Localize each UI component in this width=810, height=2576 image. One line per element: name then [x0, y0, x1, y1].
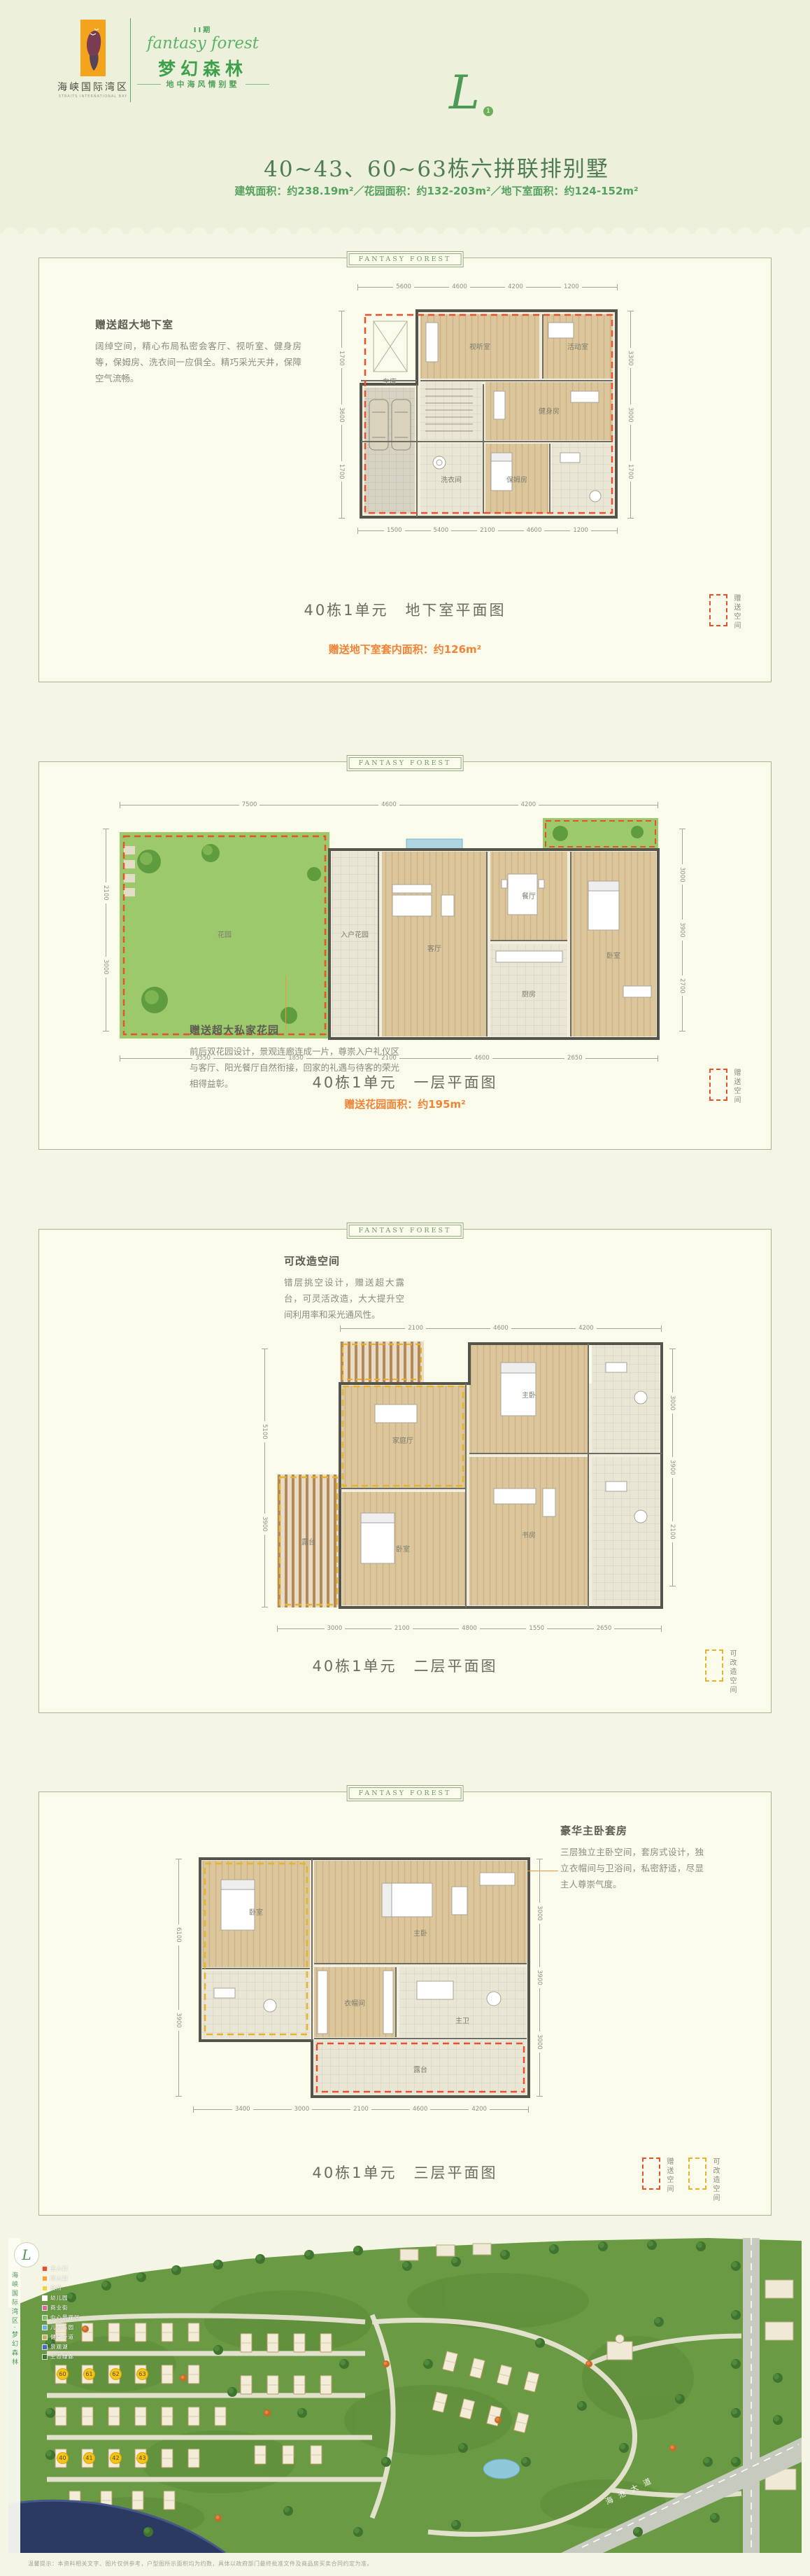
svg-text:卧室: 卧室 [249, 1908, 263, 1917]
ribbon-label: FANTASY FOREST [349, 1225, 462, 1237]
dim-value: 2100 [477, 527, 498, 535]
dim-value: 2100 [405, 1325, 426, 1332]
svg-text:卧室: 卧室 [396, 1544, 410, 1554]
dim-value: 1200 [570, 527, 591, 535]
side-strip-text: 海峡国际湾区·梦幻森林 [10, 2272, 19, 2553]
dim-value: 3000 [102, 957, 109, 978]
dim-value: 1500 [384, 527, 405, 535]
dim-value: 4800 [459, 1625, 480, 1633]
brochure-page: 海峡国际湾区 STRAITS INTERNATIONAL BAY II期 fan… [0, 0, 810, 2576]
dim-value: 4600 [378, 801, 399, 809]
svg-text:入户花园: 入户花园 [341, 930, 369, 939]
page-subtitle: 建筑面积：约238.19m²／花园面积：约132-203m²／地下室面积：约12… [63, 183, 810, 198]
dims-bottom: 34003000210046004200 [193, 2106, 529, 2113]
dim-value: 3900 [261, 1514, 268, 1535]
dims-top: 210046004200 [340, 1325, 662, 1332]
panel-ribbon: FANTASY FOREST [347, 1785, 464, 1801]
dim-value: 1550 [526, 1625, 547, 1633]
legend-remodel: 可改造空间 [688, 2158, 720, 2203]
dims-top: 5600460042001200 [357, 283, 618, 291]
building-badge: 42 [110, 2452, 122, 2464]
dim-value: 3900 [678, 920, 685, 941]
script-title: fantasy forest [140, 34, 266, 52]
svg-text:衣帽间: 衣帽间 [344, 1999, 365, 2008]
dim-value: 1200 [561, 283, 582, 291]
building-badge: 63 [136, 2368, 148, 2380]
dim-value: 4600 [410, 2106, 431, 2113]
dim-value: 2100 [350, 2106, 371, 2113]
remodel-dash-swatch [705, 1649, 723, 1682]
dim-value: 2700 [678, 976, 685, 997]
project-name: 梦幻森林 [147, 55, 259, 80]
dim-value: 3300 [627, 348, 634, 369]
plan-caption: 40栋1单元 地下室平面图 [39, 599, 771, 620]
dims-left: 51003900 [260, 1349, 269, 1607]
basement-floorplan: 车库 视听室 活动室 健身房 保姆房 洗衣间 [242, 279, 662, 608]
legend-label: 可改造空间 [727, 1649, 737, 1695]
svg-text:书房: 书房 [522, 1530, 536, 1540]
siteplan-side-strip: 海峡国际湾区·梦幻森林 [8, 2238, 20, 2553]
dim-value: 1700 [338, 348, 345, 369]
dim-value: 4600 [524, 527, 545, 535]
dim-value: 3400 [232, 2106, 253, 2113]
dim-value: 6100 [175, 1924, 182, 1945]
dims-bottom: 15005400210046001200 [357, 527, 618, 535]
legend-label: 赠送空间 [664, 2158, 674, 2194]
building-badge: 62 [110, 2368, 122, 2380]
svg-text:家庭厅: 家庭厅 [392, 1436, 413, 1445]
note-body: 三层独立主卧空间，套房式设计，独立衣帽间与卫浴间，私密舒适，尽显主人尊崇气度。 [560, 1844, 704, 1892]
note-title: 豪华主卧套房 [560, 1823, 704, 1838]
dim-value: 3000 [536, 2032, 543, 2053]
svg-text:花园: 花园 [218, 930, 232, 939]
dim-value: 4200 [518, 801, 539, 809]
panel-basement: FANTASY FOREST 赠送超大地下室 阔绰空间，精心布局私密会客厅、视听… [38, 258, 772, 682]
page-title: 40~43、60~63栋六拼联排别墅 [63, 151, 810, 183]
dim-value: 3000 [678, 864, 685, 885]
panel-ribbon: FANTASY FOREST [347, 251, 464, 267]
dim-value: 5100 [261, 1421, 268, 1442]
dims-right: 300039002700 [677, 829, 687, 1032]
dim-value: 1700 [338, 461, 345, 482]
svg-text:厨房: 厨房 [522, 990, 536, 999]
legend-gift: 赠送空间 [709, 1069, 741, 1105]
siteplan-legend-item: 中心景观区 [42, 2314, 80, 2321]
tagline: 地中海风情别墅 [125, 78, 281, 90]
rear-garden [543, 818, 658, 850]
legend-remodel: 可改造空间 [705, 1649, 737, 1695]
note-leader-line [527, 1871, 558, 1871]
panel-ribbon: FANTASY FOREST [347, 1223, 464, 1239]
remodel-dash-swatch [688, 2158, 706, 2190]
siteplan-legend-item: 会所 [42, 2284, 80, 2292]
building-badge: 40 [57, 2452, 69, 2464]
dims-right: 330030001700 [625, 311, 635, 519]
siteplan-legend-item: 儿童乐园 [42, 2323, 80, 2331]
tagline-text: 地中海风情别墅 [166, 78, 240, 90]
dim-value: 1700 [627, 461, 634, 482]
dims-left: 170036001700 [336, 311, 346, 519]
siteplan-legend-item: 幼儿园 [42, 2294, 80, 2302]
siteplan-legend-item: 次入口 [42, 2274, 80, 2282]
scallop-divider [0, 234, 810, 251]
dims-right: 300039002100 [667, 1349, 677, 1586]
legend-label: 可改造空间 [710, 2158, 720, 2203]
svg-text:健身房: 健身房 [539, 407, 560, 416]
panel-first-floor: FANTASY FOREST [38, 761, 772, 1150]
dim-value: 4200 [469, 2106, 490, 2113]
dim-value: 2650 [564, 1055, 585, 1062]
dim-value: 7500 [239, 801, 260, 809]
plan-caption: 40栋1单元 二层平面图 [39, 1655, 771, 1676]
panel-third-floor: FANTASY FOREST [38, 1792, 772, 2216]
ribbon-label: FANTASY FOREST [349, 1787, 462, 1799]
gift-dash-swatch [709, 594, 727, 626]
svg-text:露台: 露台 [301, 1537, 315, 1547]
dim-value: 3000 [536, 1903, 543, 1924]
dim-value: 3000 [669, 1393, 676, 1414]
svg-text:活动室: 活动室 [567, 342, 588, 351]
building-badge: 61 [83, 2368, 95, 2380]
siteplan-legend-item: 主入口 [42, 2265, 80, 2272]
svg-text:卧室: 卧室 [606, 951, 620, 960]
phase-label: II期 [157, 24, 248, 34]
legend-gift: 赠送空间 [709, 594, 741, 631]
dims-left: 21003000 [101, 829, 111, 1032]
dim-value: 3900 [175, 2010, 182, 2031]
note-title: 赠送超大私家花园 [190, 1022, 399, 1037]
panel-second-floor: FANTASY FOREST 可改造空间 错层挑空设计，赠送超大露台，可灵活改造… [38, 1229, 772, 1713]
dim-value: 5400 [431, 527, 452, 535]
dim-value: 3600 [338, 404, 345, 425]
svg-text:视听室: 视听室 [469, 342, 490, 351]
note-title: 可改造空间 [284, 1253, 404, 1268]
ribbon-label: FANTASY FOREST [349, 253, 462, 265]
building-badge: 43 [136, 2452, 148, 2464]
svg-text:露台: 露台 [413, 2065, 427, 2074]
siteplan-legend-item: 健身步道 [42, 2333, 80, 2341]
header-divider [130, 18, 131, 102]
plan-caption: 40栋1单元 一层平面图 [39, 1071, 771, 1092]
siteplan-legend-item: 商业街 [42, 2304, 80, 2311]
disclaimer-text: 温馨提示：本资料相关文字、图片仅供参考，户型图所示面积均为约数，具体以政府部门最… [28, 2560, 769, 2568]
building-badge: 60 [57, 2368, 69, 2380]
dim-value: 2100 [102, 882, 109, 903]
siteplan-illustration [8, 2238, 802, 2553]
legend-label: 赠送空间 [731, 1069, 741, 1105]
siteplan-legend-item: 景观湖 [42, 2343, 80, 2351]
svg-text:主卧: 主卧 [413, 1929, 427, 1938]
dim-value: 4600 [490, 1325, 511, 1332]
pond [483, 2459, 520, 2479]
dim-value: 3900 [669, 1457, 676, 1478]
svg-text:主卧: 主卧 [522, 1391, 536, 1400]
third-floor-note: 豪华主卧套房 三层独立主卧空间，套房式设计，独立衣帽间与卫浴间，私密舒适，尽显主… [560, 1823, 704, 1892]
dim-value: 2650 [594, 1625, 615, 1633]
brand-logo-icon [80, 20, 106, 76]
dims-left: 61003900 [173, 1859, 183, 2097]
dims-top: 750046004200 [120, 801, 658, 809]
svg-text:餐厅: 餐厅 [522, 892, 536, 901]
legend-pair: 赠送空间 可改造空间 [642, 2158, 720, 2203]
dim-value: 4600 [449, 283, 470, 291]
gift-area-highlight: 赠送花园面积：约195m² [39, 1097, 771, 1111]
dim-value: 3000 [325, 1625, 346, 1633]
svg-text:主卫: 主卫 [455, 2017, 469, 2025]
unit-letter-mark: L [449, 70, 480, 116]
brand-name-en: STRAITS INTERNATIONAL BAY [44, 94, 142, 99]
svg-text:洗衣间: 洗衣间 [441, 475, 462, 484]
dims-bottom: 30002100480015502650 [277, 1625, 662, 1633]
dim-value: 3900 [536, 1967, 543, 1988]
unit-letter-badge: L [14, 2242, 39, 2267]
ribbon-label: FANTASY FOREST [349, 757, 462, 769]
svg-text:保姆房: 保姆房 [506, 475, 527, 484]
dim-value: 4200 [576, 1325, 597, 1332]
dim-value: 3000 [292, 2106, 313, 2113]
unit-number-badge: 1 [483, 106, 493, 116]
dim-value: 4600 [471, 1055, 492, 1062]
legend-gift: 赠送空间 [642, 2158, 674, 2203]
third-floor-floorplan: 主卧 衣帽间 主卫 露台 卧室 [137, 1831, 592, 2139]
dim-value: 3000 [627, 404, 634, 425]
siteplan-legend-item: 生态绿廊 [42, 2353, 80, 2360]
gift-area-highlight: 赠送地下室套内面积：约126m² [39, 642, 771, 656]
dim-value: 2100 [392, 1625, 413, 1633]
building-badge: 41 [83, 2452, 95, 2464]
legend-label: 赠送空间 [731, 594, 741, 631]
master-siteplan: 海峡国际湾区·梦幻森林 L 主入口次入口会所幼儿园商业街中心景观区儿童乐园健身步… [8, 2238, 802, 2553]
dim-value: 2100 [669, 1521, 676, 1542]
light-well [374, 321, 407, 372]
second-floor-note: 可改造空间 错层挑空设计，赠送超大露台，可灵活改造，大大提升空间利用率和采光通风… [284, 1253, 404, 1323]
panel-ribbon: FANTASY FOREST [347, 755, 464, 771]
svg-text:车库: 车库 [383, 377, 397, 386]
second-floor-floorplan: 露台 家庭厅 主卧 卧室 书房 [235, 1314, 690, 1635]
siteplan-legend: 主入口次入口会所幼儿园商业街中心景观区儿童乐园健身步道景观湖生态绿廊 [42, 2265, 80, 2360]
svg-text:客厅: 客厅 [427, 944, 441, 953]
dim-value: 4200 [505, 283, 526, 291]
dims-right: 300039003000 [534, 1859, 544, 2097]
gift-dash-swatch [709, 1069, 727, 1101]
dim-value: 5600 [393, 283, 414, 291]
gift-dash-swatch [642, 2158, 660, 2190]
